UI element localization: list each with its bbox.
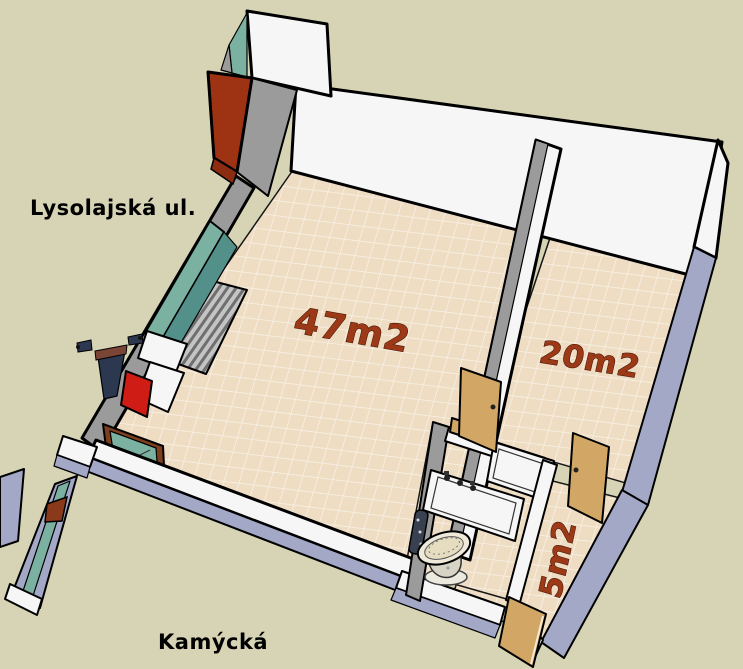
interior-door-hallway <box>568 433 609 523</box>
street-label-top: Lysolajská ul. <box>30 196 196 220</box>
street-label-bottom: Kamýcká <box>158 630 268 654</box>
interior-door-partition <box>459 368 501 452</box>
floorplan-3d-render: Lysolajská ul. Kamýcká 47m2 20m2 5m2 <box>0 0 743 669</box>
exterior-ramp <box>0 469 77 615</box>
floorplan-viewport[interactable]: Lysolajská ul. Kamýcká 47m2 20m2 5m2 <box>0 0 743 669</box>
